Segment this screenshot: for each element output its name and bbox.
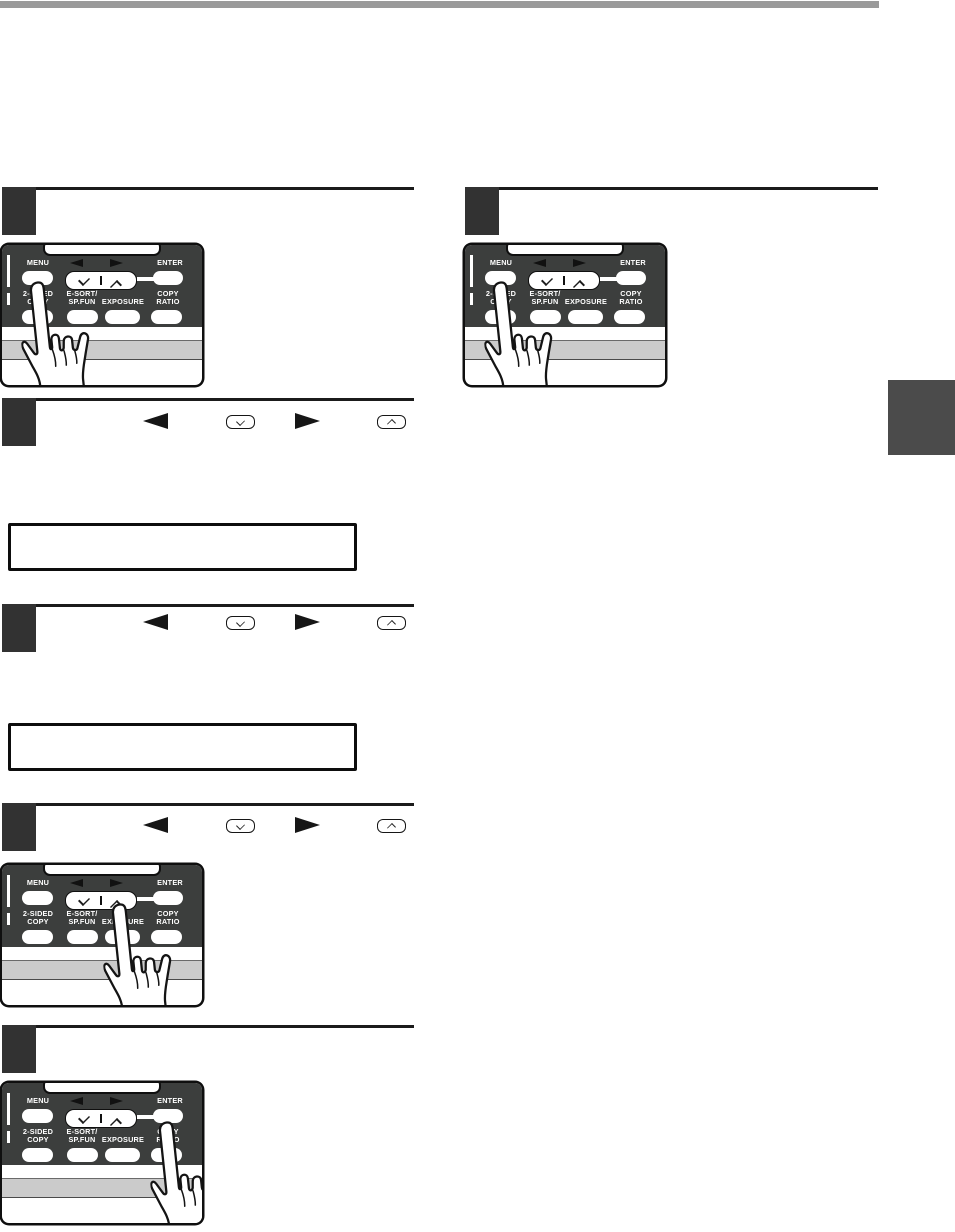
step-rule	[36, 398, 414, 401]
step-rule	[36, 1025, 414, 1028]
e-sort-sp-fun-key	[67, 930, 98, 944]
page-header-bar	[0, 1, 879, 8]
rocker-divider	[563, 276, 565, 285]
up-key-icon	[377, 616, 406, 630]
step-rule	[36, 604, 414, 607]
copy-ratio-key-label: COPY RATIO	[146, 290, 190, 306]
exposure-key-label: EXPOSURE	[98, 1136, 148, 1144]
display-lens	[506, 245, 624, 256]
up-chevron-icon	[110, 1118, 122, 1130]
step-marker-3	[2, 604, 36, 652]
left-arrow-key-icon	[143, 614, 168, 630]
down-chevron-icon	[236, 618, 245, 627]
right-arrow-key-icon	[295, 413, 320, 429]
menu-key	[22, 891, 53, 905]
up-key-icon	[377, 819, 406, 833]
exposure-key-label: EXPOSURE	[98, 298, 148, 306]
two-sided-copy-key	[22, 930, 53, 944]
exposure-key	[105, 1148, 140, 1162]
up-chevron-icon	[573, 280, 585, 292]
rocker-divider	[100, 1114, 102, 1123]
copy-ratio-key-label: COPY RATIO	[609, 290, 653, 306]
exposure-key-label: EXPOSURE	[561, 298, 611, 306]
rocker-divider	[100, 896, 102, 905]
display-lens	[43, 865, 161, 876]
panel-edge-tick	[7, 875, 10, 907]
up-chevron-icon	[387, 419, 396, 428]
display-lens	[43, 245, 161, 256]
up-chevron-icon	[387, 620, 396, 629]
e-sort-sp-fun-key	[67, 1148, 98, 1162]
enter-key	[616, 271, 646, 285]
copy-ratio-key	[151, 310, 182, 324]
menu-key-label: MENU	[15, 1097, 61, 1105]
step-rule	[36, 803, 414, 806]
control-panel-illustration: MENU ENTER 2-SIDED COPY E-SORT/ SP.FUN E…	[2, 865, 202, 1005]
right-arrow-key-icon	[295, 817, 320, 833]
left-arrow-icon	[70, 259, 83, 267]
down-key-icon	[226, 616, 255, 630]
right-arrow-icon	[573, 259, 586, 267]
enter-key-label: ENTER	[148, 1097, 192, 1105]
pointing-hand-icon	[144, 1115, 202, 1223]
down-key-icon	[226, 415, 255, 429]
up-key-icon	[377, 415, 406, 429]
left-arrow-key-icon	[143, 817, 168, 833]
left-arrow-icon	[70, 1097, 83, 1105]
pointing-hand-icon	[15, 275, 102, 385]
right-arrow-icon	[110, 259, 123, 267]
up-chevron-icon	[387, 823, 396, 832]
panel-edge-tick	[7, 255, 10, 287]
step-marker-5	[2, 1025, 36, 1073]
left-arrow-key-icon	[143, 413, 168, 429]
pointing-hand-icon	[97, 897, 184, 1005]
down-chevron-icon	[236, 417, 245, 426]
control-panel-illustration: MENU ENTER 2-SIDED COPY E-SORT/ SP.FUN E…	[2, 245, 202, 385]
enter-key-label: ENTER	[611, 259, 655, 267]
step-marker-right-1	[465, 187, 499, 235]
section-side-tab	[888, 380, 955, 455]
menu-key-label: MENU	[15, 879, 61, 887]
up-chevron-icon	[110, 280, 122, 292]
menu-key-label: MENU	[478, 259, 524, 267]
left-arrow-icon	[70, 879, 83, 887]
down-chevron-icon	[236, 821, 245, 830]
enter-key	[153, 271, 183, 285]
menu-key	[22, 1109, 53, 1123]
panel-edge-tick	[470, 255, 473, 287]
manual-page: MENU ENTER 2-SIDED COPY E-SORT/ SP.FUN E…	[0, 0, 955, 1232]
rocker-divider	[100, 276, 102, 285]
down-chevron-icon	[78, 894, 90, 906]
right-arrow-key-icon	[295, 614, 320, 630]
panel-edge-tick	[7, 1093, 10, 1125]
right-arrow-icon	[110, 879, 123, 887]
control-panel-illustration: MENU ENTER 2-SIDED COPY E-SORT/ SP.FUN E…	[465, 245, 665, 385]
left-arrow-icon	[533, 259, 546, 267]
down-key-icon	[226, 819, 255, 833]
exposure-key	[105, 310, 140, 324]
copy-ratio-key	[614, 310, 645, 324]
enter-key-label: ENTER	[148, 879, 192, 887]
step-marker-2	[2, 398, 36, 446]
menu-key-label: MENU	[15, 259, 61, 267]
two-sided-copy-key	[22, 1148, 53, 1162]
exposure-key	[568, 310, 603, 324]
right-arrow-icon	[110, 1097, 123, 1105]
down-chevron-icon	[78, 1112, 90, 1124]
control-panel-illustration: MENU ENTER 2-SIDED COPY E-SORT/ SP.FUN E…	[2, 1083, 202, 1223]
lcd-display	[8, 723, 357, 771]
display-lens	[43, 1083, 161, 1094]
step-marker-1	[2, 187, 36, 235]
enter-key-label: ENTER	[148, 259, 192, 267]
step-rule	[499, 187, 878, 190]
lcd-display	[8, 523, 357, 571]
scroll-rocker-key	[65, 1109, 137, 1128]
step-marker-4	[2, 803, 36, 851]
pointing-hand-icon	[478, 275, 565, 385]
step-rule	[36, 187, 414, 190]
